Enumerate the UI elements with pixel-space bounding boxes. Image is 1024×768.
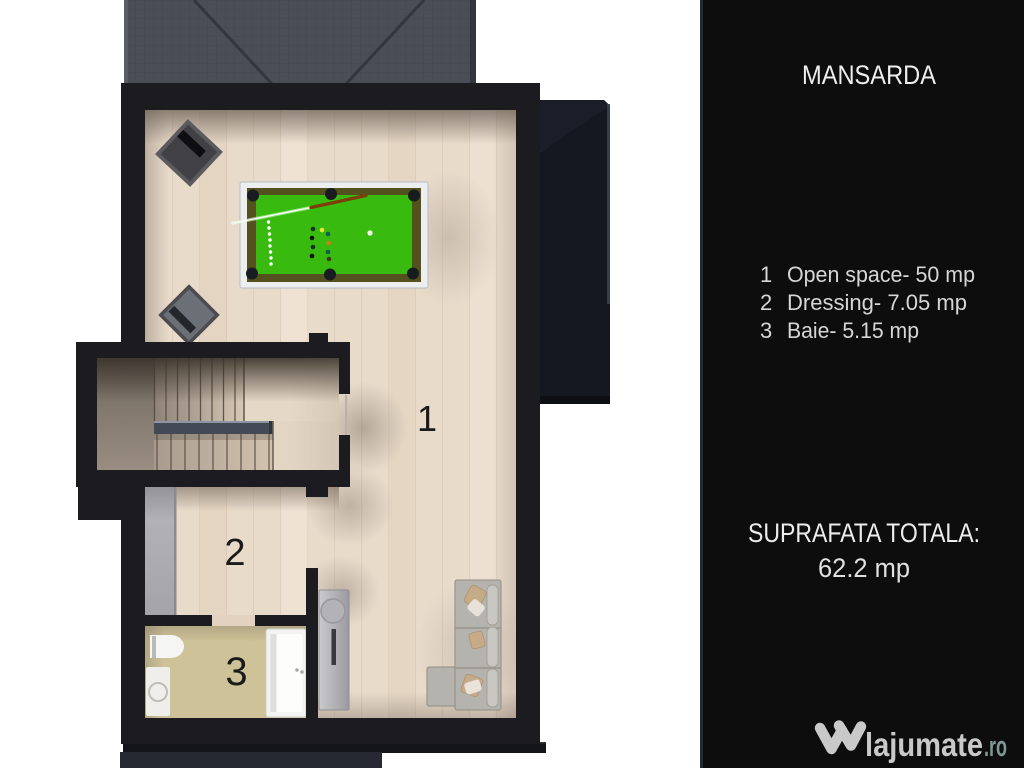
svg-text:SUPRAFATA TOTALA:: SUPRAFATA TOTALA: bbox=[748, 518, 980, 548]
svg-text:Open space- 50 mp: Open space- 50 mp bbox=[787, 262, 975, 287]
svg-text:2: 2 bbox=[224, 532, 245, 574]
svg-text:3: 3 bbox=[225, 650, 247, 694]
svg-text:62.2 mp: 62.2 mp bbox=[818, 553, 910, 583]
svg-text:1: 1 bbox=[760, 262, 772, 287]
svg-text:3: 3 bbox=[760, 318, 772, 343]
svg-text:Dressing- 7.05 mp: Dressing- 7.05 mp bbox=[787, 290, 967, 315]
svg-text:Baie- 5.15 mp: Baie- 5.15 mp bbox=[787, 318, 919, 343]
svg-text:lajumate: lajumate bbox=[865, 726, 983, 763]
svg-text:2: 2 bbox=[760, 290, 772, 315]
svg-text:1: 1 bbox=[417, 398, 437, 439]
svg-text:.ro: .ro bbox=[984, 731, 1007, 763]
svg-text:MANSARDA: MANSARDA bbox=[802, 60, 936, 90]
